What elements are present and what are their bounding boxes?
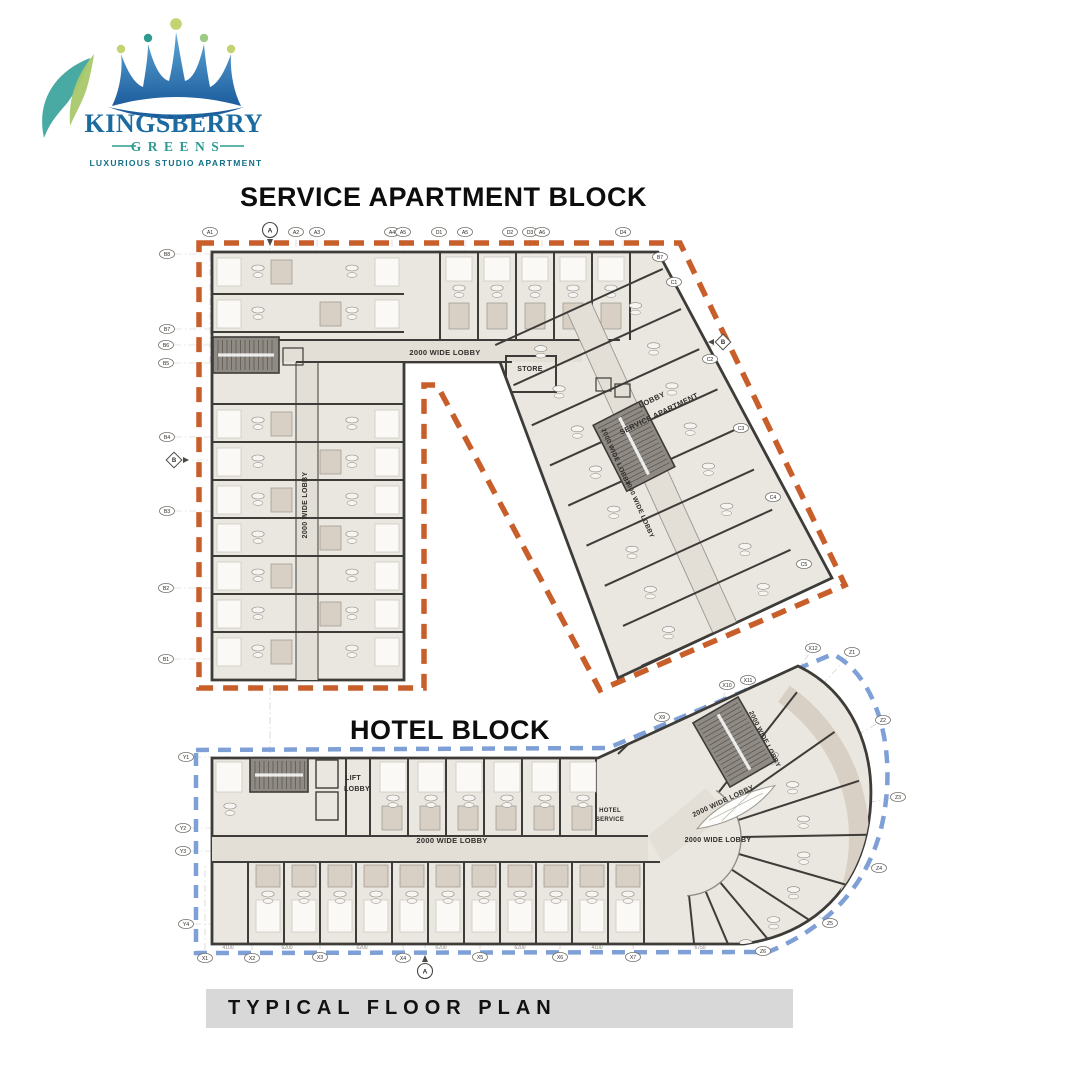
room-tag-oval	[492, 293, 502, 298]
plan-label: 4100	[222, 945, 233, 951]
grid-marker-Z1: Z1	[845, 647, 860, 656]
room-tag-oval	[702, 463, 714, 469]
grid-marker-X5: X5	[473, 952, 488, 961]
plan-rect	[534, 806, 554, 830]
room-tag-oval	[662, 626, 674, 632]
plan-label: B2	[163, 586, 169, 592]
room-tag-oval	[347, 539, 357, 544]
plan-label: A	[268, 227, 273, 234]
plan-rect	[580, 900, 604, 932]
plan-rect	[271, 260, 292, 284]
kingsberry-logo: KINGSBERRY GREENS LUXURIOUS STUDIO APART…	[24, 10, 262, 172]
plan-rect	[217, 448, 241, 476]
plan-rect	[271, 412, 292, 436]
plan-rect	[380, 762, 406, 792]
plan-label: D1	[436, 230, 443, 236]
brand-subname: GREENS	[131, 139, 226, 154]
room-tag-oval	[252, 645, 264, 651]
room-tag-oval	[551, 899, 561, 904]
room-tag-oval	[739, 543, 751, 549]
room-tag-oval	[645, 594, 655, 599]
room-tag-oval	[554, 393, 564, 398]
plan-rect	[456, 762, 482, 792]
plan-label: D3	[527, 230, 534, 236]
room-tag-oval	[225, 811, 235, 816]
room-tag-oval	[530, 293, 540, 298]
plan-rect	[522, 257, 548, 281]
grid-marker-A3: A3	[310, 227, 325, 236]
room-tag-oval	[577, 795, 589, 801]
plan-label: X4	[400, 956, 406, 962]
plan-rect	[271, 488, 292, 512]
plan-label: Z5	[827, 921, 833, 927]
room-tag-oval	[798, 824, 808, 829]
plan-label: 2000 WIDE LOBBY	[302, 472, 309, 539]
room-tag-oval	[388, 803, 398, 808]
room-tag-oval	[722, 511, 732, 516]
plan-rect	[570, 762, 596, 792]
plan-label: 2000 WIDE LOBBY	[685, 837, 752, 844]
plan-label: A6	[539, 230, 545, 236]
room-tag-oval	[346, 531, 358, 537]
room-tag-oval	[253, 501, 263, 506]
plan-rect	[320, 302, 341, 326]
room-tag-oval	[262, 891, 274, 897]
room-tag-oval	[253, 539, 263, 544]
grid-marker-B1: B1	[159, 654, 174, 663]
grid-marker-D1: D1	[432, 227, 447, 236]
plan-rect	[292, 900, 316, 932]
room-tag-oval	[740, 551, 750, 556]
room-tag-oval	[491, 285, 503, 291]
grid-marker-B8: B8	[160, 249, 175, 258]
plan-label: 6200	[281, 945, 292, 951]
plan-label: HOTEL	[599, 808, 621, 814]
room-tag-oval	[478, 891, 490, 897]
grid-marker-B7: B7	[160, 324, 175, 333]
plan-rect	[375, 600, 399, 628]
grid-marker-X11: X11	[741, 675, 756, 684]
plan-label: A2	[293, 230, 299, 236]
plan-label: STORE	[517, 366, 543, 373]
room-tag-oval	[623, 899, 633, 904]
plan-label: B3	[164, 509, 170, 515]
plan-label: A5	[462, 230, 468, 236]
plan-rect	[375, 258, 399, 286]
room-tag-oval	[387, 795, 399, 801]
room-tag-oval	[586, 891, 598, 897]
plan-label: X3	[317, 955, 323, 961]
plan-rect	[487, 303, 507, 329]
room-tag-oval	[263, 899, 273, 904]
room-tag-oval	[479, 899, 489, 904]
plan-label: 4100	[591, 945, 602, 951]
plan-label: X1	[202, 956, 208, 962]
room-tag-oval	[578, 803, 588, 808]
plan-rect	[328, 865, 352, 887]
plan-label: Y1	[183, 755, 189, 761]
room-tag-oval	[425, 795, 437, 801]
plan-label: X5	[477, 955, 483, 961]
plan-rect	[525, 303, 545, 329]
plan-rect	[217, 486, 241, 514]
plan-rect	[544, 900, 568, 932]
plan-label: A5	[400, 230, 406, 236]
plan-rect	[271, 564, 292, 588]
room-tag-oval	[685, 431, 695, 436]
room-tag-oval	[684, 423, 696, 429]
grid-marker-Z5: Z5	[823, 918, 838, 927]
room-tag-oval	[626, 546, 638, 552]
plan-rect	[532, 762, 558, 792]
grid-marker-Y1: Y1	[179, 752, 194, 761]
plan-rect	[616, 900, 640, 932]
room-tag-oval	[664, 634, 674, 639]
room-tag-oval	[253, 463, 263, 468]
caption-banner: TYPICAL FLOOR PLAN	[206, 989, 793, 1028]
room-tag-oval	[515, 899, 525, 904]
caption-text: TYPICAL FLOOR PLAN	[206, 989, 793, 1028]
room-tag-oval	[346, 307, 358, 313]
room-tag-oval	[589, 466, 601, 472]
room-tag-oval	[501, 795, 513, 801]
plan-label: C3	[738, 426, 745, 432]
plan-rect	[580, 865, 604, 887]
room-tag-oval	[797, 816, 809, 822]
room-tag-oval	[550, 891, 562, 897]
room-tag-oval	[667, 390, 677, 395]
plan-label: SERVICE	[596, 817, 624, 823]
plan-label: Z6	[760, 949, 766, 955]
room-tag-oval	[721, 503, 733, 509]
plan-rect	[320, 602, 341, 626]
plan-label: B	[721, 340, 726, 346]
plan-rect	[292, 865, 316, 887]
room-tag-oval	[648, 343, 660, 349]
grid-marker-C1: C1	[667, 277, 682, 286]
grid-marker-C5: C5	[797, 559, 812, 568]
room-tag-oval	[464, 803, 474, 808]
plan-label: 2000 WIDE LOBBY	[409, 348, 480, 357]
plan-rect	[449, 303, 469, 329]
plan-rect	[508, 865, 532, 887]
plan-label: A	[423, 968, 428, 975]
grid-marker-B4: B4	[160, 432, 175, 441]
room-tag-oval	[567, 285, 579, 291]
stairwell	[250, 758, 308, 792]
room-tag-oval	[426, 803, 436, 808]
plan-label: Z1	[849, 650, 855, 656]
room-tag-oval	[787, 887, 799, 893]
crown-icon	[108, 18, 244, 119]
room-tag-oval	[252, 607, 264, 613]
plan-label: C5	[801, 562, 808, 568]
plan-label: Z3	[895, 795, 901, 801]
plan-rect	[217, 258, 241, 286]
plan-rect	[382, 806, 402, 830]
room-tag-oval	[788, 789, 798, 794]
plan-rect	[375, 410, 399, 438]
plan-label: 2000 WIDE LOBBY	[416, 836, 487, 845]
room-tag-oval	[371, 899, 381, 904]
room-tag-oval	[347, 577, 357, 582]
grid-marker-X4: X4	[396, 953, 411, 962]
room-tag-oval	[253, 653, 263, 658]
grid-marker-X3: X3	[313, 952, 328, 961]
room-tag-oval	[253, 425, 263, 430]
grid-marker-B: B	[166, 452, 189, 468]
room-tag-oval	[252, 531, 264, 537]
plan-rect	[216, 762, 242, 792]
plan-label: Y3	[180, 849, 186, 855]
grid-marker-A: A	[418, 955, 433, 979]
room-tag-oval	[767, 917, 779, 923]
plan-label: D4	[620, 230, 627, 236]
plan-label: B6	[163, 343, 169, 349]
plan-label: X7	[630, 955, 636, 961]
plan-rect	[472, 865, 496, 887]
room-tag-oval	[370, 891, 382, 897]
plan-rect	[472, 900, 496, 932]
grid-marker-Y4: Y4	[179, 919, 194, 928]
room-tag-oval	[253, 577, 263, 582]
grid-marker-X12: X12	[806, 643, 821, 652]
grid-marker-B5: B5	[159, 358, 174, 367]
grid-marker-Z4: Z4	[872, 863, 887, 872]
room-tag-oval	[347, 463, 357, 468]
room-tag-oval	[407, 899, 417, 904]
room-tag-oval	[758, 591, 768, 596]
grid-marker-Y2: Y2	[176, 823, 191, 832]
grid-marker-X10: X10	[720, 680, 735, 689]
plan-label: A1	[207, 230, 213, 236]
room-tag-oval	[666, 383, 678, 389]
room-tag-oval	[703, 471, 713, 476]
room-tag-oval	[347, 315, 357, 320]
plan-rect	[446, 257, 472, 281]
room-tag-oval	[769, 924, 779, 929]
plan-rect	[560, 257, 586, 281]
plan-rect	[598, 257, 624, 281]
plan-rect	[508, 900, 532, 932]
plan-rect	[400, 900, 424, 932]
room-tag-oval	[622, 891, 634, 897]
room-tag-oval	[347, 273, 357, 278]
plan-rect	[458, 806, 478, 830]
plan-label: C1	[671, 280, 678, 286]
plan-rect	[375, 486, 399, 514]
plan-label: Z4	[876, 866, 882, 872]
room-tag-oval	[514, 891, 526, 897]
grid-marker-B3: B3	[160, 506, 175, 515]
grid-marker-A6: A6	[535, 227, 550, 236]
plan-rect	[375, 524, 399, 552]
room-tag-oval	[442, 891, 454, 897]
plan-rect	[601, 303, 621, 329]
grid-marker-B7: B7	[653, 252, 668, 261]
plan-label: 6200	[514, 945, 525, 951]
page: 2000 WIDE LOBBY2000 WIDE LOBBYSTORE2000 …	[0, 0, 1068, 1080]
grid-marker-A5: A5	[458, 227, 473, 236]
grid-marker-A5: A5	[396, 227, 411, 236]
room-tag-oval	[347, 653, 357, 658]
plan-label: 6200	[435, 945, 446, 951]
plan-label: B7	[657, 255, 663, 261]
room-tag-oval	[347, 615, 357, 620]
room-tag-oval	[630, 310, 640, 315]
plan-label: B	[172, 458, 177, 464]
room-tag-oval	[568, 293, 578, 298]
grid-marker-X9: X9	[655, 712, 670, 721]
room-tag-oval	[629, 303, 641, 309]
plan-rect	[217, 300, 241, 328]
plan-rect	[375, 562, 399, 590]
grid-marker-C4: C4	[766, 492, 781, 501]
plan-rect	[217, 600, 241, 628]
plan-label: X9	[659, 715, 665, 721]
room-tag-oval	[252, 455, 264, 461]
room-tag-oval	[798, 852, 810, 858]
plan-label: C2	[707, 357, 714, 363]
grid-marker-X1: X1	[198, 953, 213, 962]
room-tag-oval	[540, 803, 550, 808]
plan-label: Z2	[880, 718, 886, 724]
room-tag-oval	[334, 891, 346, 897]
room-tag-oval	[608, 506, 620, 512]
grid-marker-X6: X6	[553, 952, 568, 961]
plan-rect	[256, 865, 280, 887]
plan-label: B7	[164, 327, 170, 333]
plan-label: 6200	[356, 945, 367, 951]
room-tag-oval	[347, 425, 357, 430]
plan-label: B5	[163, 361, 169, 367]
room-tag-oval	[346, 645, 358, 651]
room-tag-oval	[346, 493, 358, 499]
grid-marker-D4: D4	[616, 227, 631, 236]
plan-label: A4	[389, 230, 395, 236]
grid-marker-D2: D2	[503, 227, 518, 236]
plan-rect	[375, 638, 399, 666]
grid-marker-X7: X7	[626, 952, 641, 961]
plan-label: B1	[163, 657, 169, 663]
room-tag-oval	[346, 569, 358, 575]
room-tag-oval	[757, 583, 769, 589]
room-tag-oval	[335, 899, 345, 904]
plan-label: 6750	[694, 945, 705, 951]
plan-rect	[420, 806, 440, 830]
plan-rect	[217, 562, 241, 590]
room-tag-oval	[454, 293, 464, 298]
room-tag-oval	[536, 353, 546, 358]
grid-marker-B2: B2	[159, 583, 174, 592]
room-tag-oval	[347, 501, 357, 506]
room-tag-oval	[346, 265, 358, 271]
room-tag-oval	[535, 346, 547, 352]
room-tag-oval	[346, 455, 358, 461]
plan-rect	[217, 524, 241, 552]
grid-marker-Z2: Z2	[876, 715, 891, 724]
stairwell	[213, 337, 279, 373]
grid-marker-Z6: Z6	[756, 946, 771, 955]
plan-rect	[364, 900, 388, 932]
room-tag-oval	[591, 474, 601, 479]
room-tag-oval	[346, 417, 358, 423]
plan-rect	[418, 762, 444, 792]
room-tag-oval	[799, 860, 809, 865]
plan-label: LIFT	[345, 775, 361, 782]
brand-name: KINGSBERRY	[85, 109, 262, 138]
room-tag-oval	[644, 586, 656, 592]
plan-label: Y4	[183, 922, 189, 928]
plan-rect	[616, 865, 640, 887]
plan-rect	[256, 900, 280, 932]
room-tag-oval	[627, 554, 637, 559]
plan-label: X10	[722, 683, 731, 689]
plan-rect	[320, 526, 341, 550]
plan-label: B4	[164, 435, 170, 441]
grid-marker-Y3: Y3	[176, 846, 191, 855]
grid-marker-B6: B6	[159, 340, 174, 349]
plan-rect	[375, 448, 399, 476]
grid-marker-C2: C2	[703, 354, 718, 363]
plan-rect	[217, 410, 241, 438]
hotel-block-title: HOTEL BLOCK	[330, 715, 570, 746]
plan-rect	[544, 865, 568, 887]
plan-rect	[400, 865, 424, 887]
plan-label: B8	[164, 252, 170, 258]
grid-marker-C3: C3	[734, 423, 749, 432]
plan-rect	[436, 900, 460, 932]
plan-rect	[496, 806, 516, 830]
plan-rect	[328, 900, 352, 932]
plan-label: X2	[249, 956, 255, 962]
room-tag-oval	[298, 891, 310, 897]
plan-rect	[436, 865, 460, 887]
room-tag-oval	[252, 307, 264, 313]
plan-label: A3	[314, 230, 320, 236]
room-tag-oval	[346, 607, 358, 613]
room-tag-oval	[299, 899, 309, 904]
room-tag-oval	[252, 417, 264, 423]
room-tag-oval	[786, 782, 798, 788]
plan-rect	[494, 762, 520, 792]
plan-rect	[375, 300, 399, 328]
room-tag-oval	[789, 894, 799, 899]
room-tag-oval	[253, 615, 263, 620]
room-tag-oval	[252, 569, 264, 575]
room-tag-oval	[224, 803, 236, 809]
plan-rect	[364, 865, 388, 887]
room-tag-oval	[708, 961, 718, 966]
plan-rect	[271, 640, 292, 664]
plan-rect	[320, 450, 341, 474]
grid-marker-A1: A1	[203, 227, 218, 236]
room-tag-oval	[253, 273, 263, 278]
room-tag-oval	[252, 493, 264, 499]
plan-label: LOBBY	[344, 786, 370, 793]
room-tag-oval	[252, 265, 264, 271]
room-tag-oval	[502, 803, 512, 808]
plan-label: X11	[744, 678, 753, 684]
plan-rect	[572, 806, 592, 830]
room-tag-oval	[649, 350, 659, 355]
grid-marker-Z3: Z3	[891, 792, 906, 801]
plan-label: Y2	[180, 826, 186, 832]
plan-rect	[484, 257, 510, 281]
plan-rect	[217, 638, 241, 666]
room-tag-oval	[406, 891, 418, 897]
room-tag-oval	[553, 386, 565, 392]
